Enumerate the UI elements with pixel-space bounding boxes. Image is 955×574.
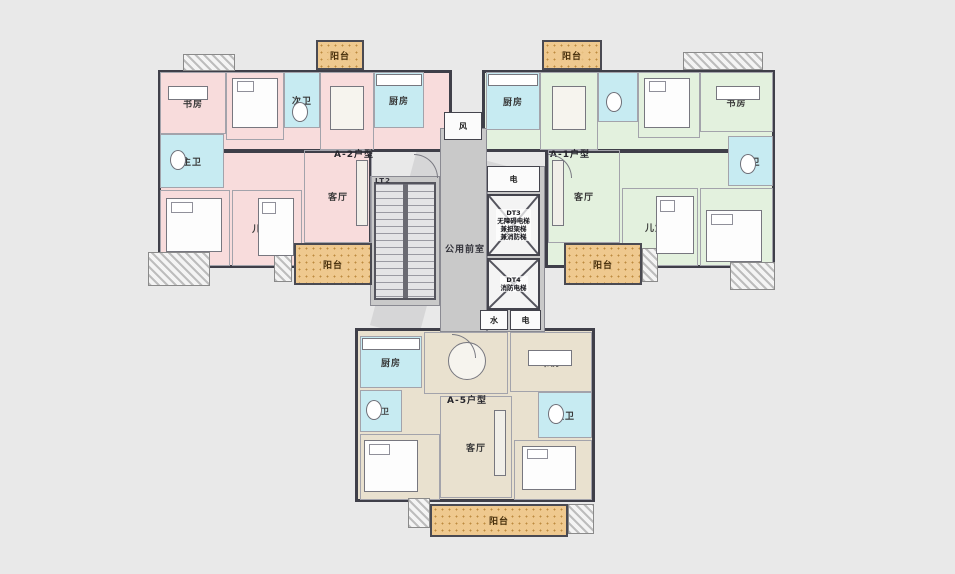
room-a1-kitchen-label: 厨房 [503, 95, 523, 108]
toilet-icon [740, 154, 756, 174]
bed-icon [522, 446, 576, 490]
unit-a5-type-label: A-5户型 [432, 393, 502, 406]
ac-platform-hatch [148, 252, 210, 286]
balcony-mid-left-label: 阳台 [321, 258, 345, 271]
balcony-bottom: 阳台 [430, 504, 568, 537]
bed-icon [656, 196, 694, 254]
shaft-air: 风 [444, 112, 482, 140]
sofa-icon [494, 410, 506, 476]
elevator-dt4-line1: 消防电梯 [501, 284, 527, 292]
shaft-electric-bottom: 电 [510, 310, 541, 330]
desk-icon [528, 350, 572, 366]
room-a2-study: 书房 [160, 72, 226, 134]
unit-a2-type-label: A-2户型 [318, 147, 390, 160]
bed-icon [644, 78, 690, 128]
ac-platform-hatch [683, 52, 763, 70]
unit-a1-type-label: A-1户型 [534, 147, 606, 160]
shaft-electric-top: 电 [487, 166, 540, 192]
shaft-air-label: 风 [459, 121, 467, 132]
elevator-dt4-id: DT4 [501, 276, 527, 284]
core-corridor [440, 128, 487, 332]
stair-divider [403, 184, 408, 298]
dining-table-icon [330, 86, 364, 130]
elevator-dt3-text: DT3 无障碍电梯 兼担架梯 兼消防梯 [496, 209, 531, 241]
elevator-dt3-id: DT3 [497, 209, 530, 217]
floor-plan: LT2 公用前室 电 DT3 无障碍电梯 兼担架梯 兼消防梯 DT4 消防电梯 … [0, 0, 955, 574]
ac-platform-hatch [183, 54, 235, 71]
bed-icon [166, 198, 222, 252]
dining-table-icon [552, 86, 586, 130]
toilet-icon [292, 102, 308, 122]
elevator-dt4-text: DT4 消防电梯 [500, 276, 528, 292]
shaft-water: 水 [480, 310, 508, 330]
elevator-dt4: DT4 消防电梯 [487, 258, 540, 310]
toilet-icon [606, 92, 622, 112]
bed-icon [706, 210, 762, 262]
balcony-bottom-label: 阳台 [487, 514, 511, 527]
kitchen-counter-icon [362, 338, 420, 350]
staircase [374, 182, 436, 300]
kitchen-counter-icon [488, 74, 538, 86]
shaft-water-label: 水 [490, 315, 498, 326]
elevator-dt3-line2: 兼担架梯 [497, 225, 530, 233]
room-a5-bath2: 次卫 [538, 392, 592, 438]
elevator-dt3-line3: 兼消防梯 [497, 233, 530, 241]
kitchen-counter-icon [376, 74, 422, 86]
toilet-icon [170, 150, 186, 170]
elevator-dt3-line1: 无障碍电梯 [497, 217, 530, 225]
bed-icon [258, 198, 294, 256]
balcony-mid-right-label: 阳台 [591, 258, 615, 271]
ac-platform-hatch [730, 262, 775, 290]
desk-icon [716, 86, 760, 100]
shaft-electric-bottom-label: 电 [522, 315, 530, 326]
room-a1-study: 书房 [700, 72, 773, 132]
balcony-top-right: 阳台 [542, 40, 602, 70]
elevator-dt3: DT3 无障碍电梯 兼担架梯 兼消防梯 [487, 194, 540, 256]
room-a1-living-label: 客厅 [574, 190, 594, 203]
shaft-electric-top-label: 电 [510, 174, 518, 185]
balcony-top-left-label: 阳台 [328, 49, 352, 62]
toilet-icon [366, 400, 382, 420]
balcony-top-left: 阳台 [316, 40, 364, 70]
ac-platform-hatch [568, 504, 594, 534]
sofa-icon [356, 160, 368, 226]
room-a5-kitchen-label: 厨房 [381, 356, 401, 369]
toilet-icon [548, 404, 564, 424]
balcony-top-right-label: 阳台 [560, 49, 584, 62]
desk-icon [168, 86, 208, 100]
stair-label: LT2 [375, 177, 391, 185]
balcony-mid-right: 阳台 [564, 243, 642, 285]
balcony-mid-left: 阳台 [294, 243, 372, 285]
bed-icon [364, 440, 418, 492]
ac-platform-hatch [408, 498, 430, 528]
room-a2-kitchen-label: 厨房 [389, 94, 409, 107]
bed-icon [232, 78, 278, 128]
room-a5-living-label: 客厅 [466, 441, 486, 454]
room-a2-living-label: 客厅 [328, 190, 348, 203]
